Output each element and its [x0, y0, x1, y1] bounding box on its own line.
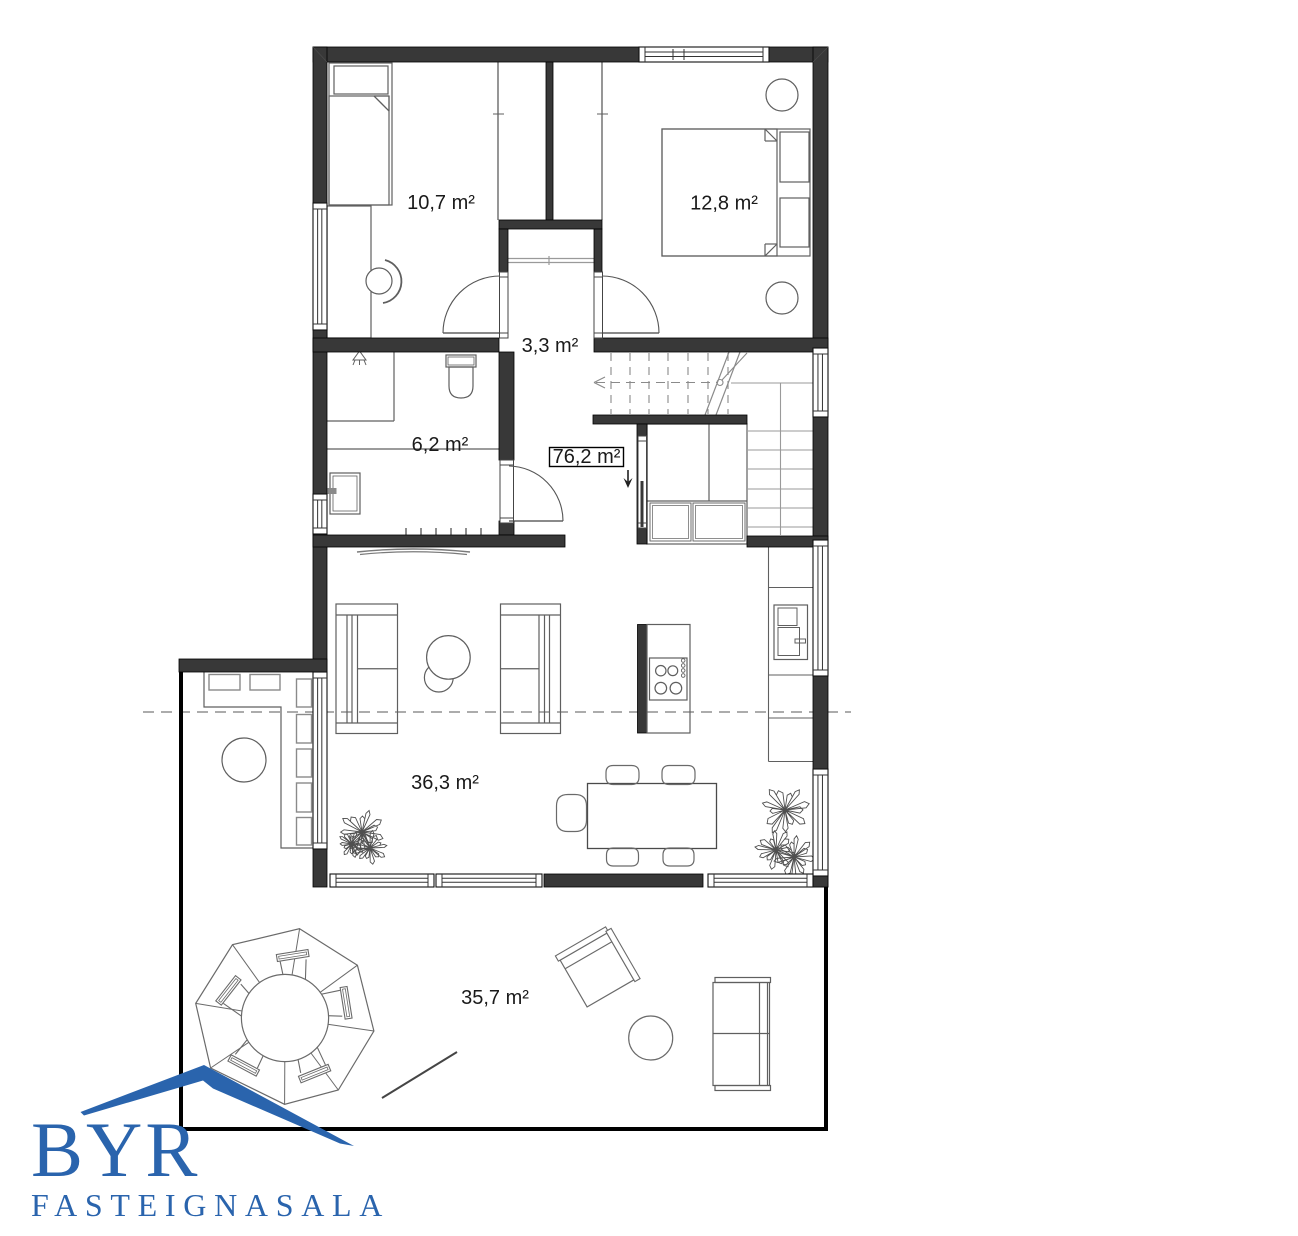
svg-text:FASTEIGNASALA: FASTEIGNASALA [31, 1187, 390, 1223]
svg-text:3,3 m²: 3,3 m² [522, 335, 579, 357]
svg-text:36,3 m²: 36,3 m² [411, 772, 479, 794]
svg-text:12,8 m²: 12,8 m² [690, 193, 758, 215]
svg-text:76,2 m²: 76,2 m² [553, 446, 621, 468]
svg-text:10,7 m²: 10,7 m² [407, 192, 475, 214]
svg-text:BYR: BYR [31, 1106, 200, 1193]
svg-text:6,2 m²: 6,2 m² [412, 434, 469, 456]
svg-text:35,7 m²: 35,7 m² [461, 987, 529, 1009]
